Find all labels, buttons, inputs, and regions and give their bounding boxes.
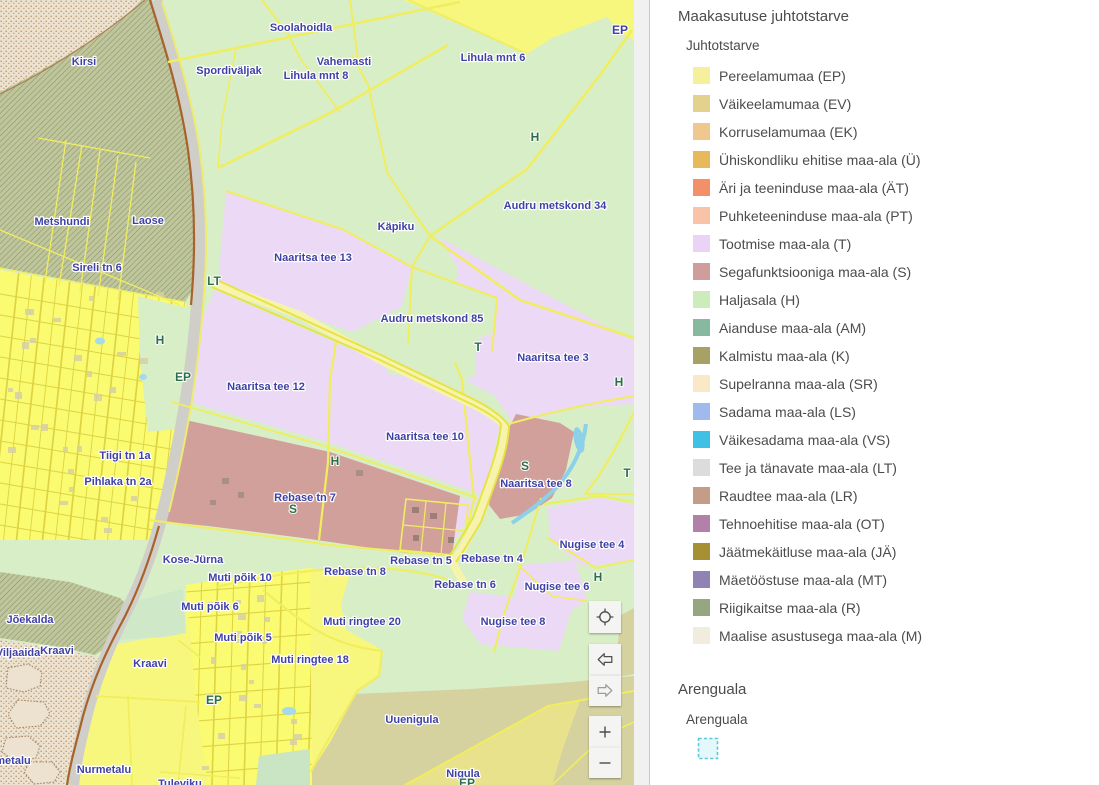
svg-text:Uuenigula: Uuenigula (385, 714, 439, 726)
svg-text:Tuleviku: Tuleviku (158, 778, 202, 785)
svg-text:Rebase tn 7: Rebase tn 7 (274, 492, 336, 504)
svg-text:Kraavi: Kraavi (133, 658, 167, 670)
svg-text:EP: EP (206, 693, 222, 707)
svg-text:LT: LT (207, 274, 221, 288)
svg-text:Jõekalda: Jõekalda (6, 614, 54, 626)
svg-text:Rebase tn 8: Rebase tn 8 (324, 566, 386, 578)
svg-text:Spordiväljak: Spordiväljak (196, 65, 262, 77)
svg-text:EP: EP (175, 370, 191, 384)
svg-text:Naaritsa tee 13: Naaritsa tee 13 (274, 252, 352, 264)
svg-text:Kirsi: Kirsi (72, 56, 96, 68)
svg-text:T: T (623, 466, 631, 480)
svg-text:Nugise tee 8: Nugise tee 8 (481, 616, 546, 628)
svg-text:Vahemasti: Vahemasti (317, 56, 371, 68)
svg-text:T: T (474, 340, 482, 354)
svg-text:Rebase tn 6: Rebase tn 6 (434, 579, 496, 591)
svg-text:Metshundi: Metshundi (35, 216, 90, 228)
svg-text:Naaritsa tee 8: Naaritsa tee 8 (500, 478, 572, 490)
svg-text:Laose: Laose (132, 215, 164, 227)
svg-text:Naaritsa tee 3: Naaritsa tee 3 (517, 352, 589, 364)
svg-text:Kose-Jürna: Kose-Jürna (163, 554, 224, 566)
svg-text:Muti põik 6: Muti põik 6 (181, 601, 238, 613)
svg-text:Lihula mnt 8: Lihula mnt 8 (284, 70, 349, 82)
svg-text:Nurmetalu: Nurmetalu (77, 764, 131, 776)
svg-text:H: H (331, 454, 340, 468)
svg-text:Soolahoidla: Soolahoidla (270, 22, 333, 34)
svg-text:Audru metskond 34: Audru metskond 34 (504, 200, 608, 212)
svg-text:Rebase tn 4: Rebase tn 4 (461, 553, 524, 565)
svg-text:H: H (594, 570, 603, 584)
svg-text:Tiigi tn 1a: Tiigi tn 1a (99, 450, 151, 462)
svg-text:Rebase tn 5: Rebase tn 5 (390, 555, 452, 567)
svg-text:Viljaaida: Viljaaida (0, 647, 41, 659)
svg-text:Kraavi: Kraavi (40, 645, 74, 657)
svg-text:H: H (615, 375, 624, 389)
svg-text:Nugise tee 6: Nugise tee 6 (525, 581, 590, 593)
svg-text:Käpiku: Käpiku (378, 221, 415, 233)
svg-text:Muti põik 10: Muti põik 10 (208, 572, 272, 584)
svg-text:Sireli tn 6: Sireli tn 6 (72, 262, 122, 274)
svg-text:S: S (521, 459, 529, 473)
svg-text:Muti ringtee 20: Muti ringtee 20 (323, 616, 401, 628)
svg-text:Lihula mnt 6: Lihula mnt 6 (461, 52, 526, 64)
svg-text:metalu: metalu (0, 755, 31, 767)
svg-text:Muti põik 5: Muti põik 5 (214, 632, 271, 644)
svg-text:Pihlaka tn 2a: Pihlaka tn 2a (84, 476, 152, 488)
svg-text:S: S (289, 502, 297, 516)
svg-text:H: H (156, 333, 165, 347)
svg-text:Muti ringtee 18: Muti ringtee 18 (271, 654, 349, 666)
svg-text:Nugise tee 4: Nugise tee 4 (560, 539, 626, 551)
svg-text:EP: EP (459, 776, 475, 785)
svg-text:EP: EP (612, 23, 628, 37)
svg-text:Naaritsa tee 12: Naaritsa tee 12 (227, 381, 305, 393)
svg-text:Audru metskond 85: Audru metskond 85 (381, 313, 484, 325)
svg-text:H: H (531, 130, 540, 144)
svg-text:Naaritsa tee 10: Naaritsa tee 10 (386, 431, 464, 443)
